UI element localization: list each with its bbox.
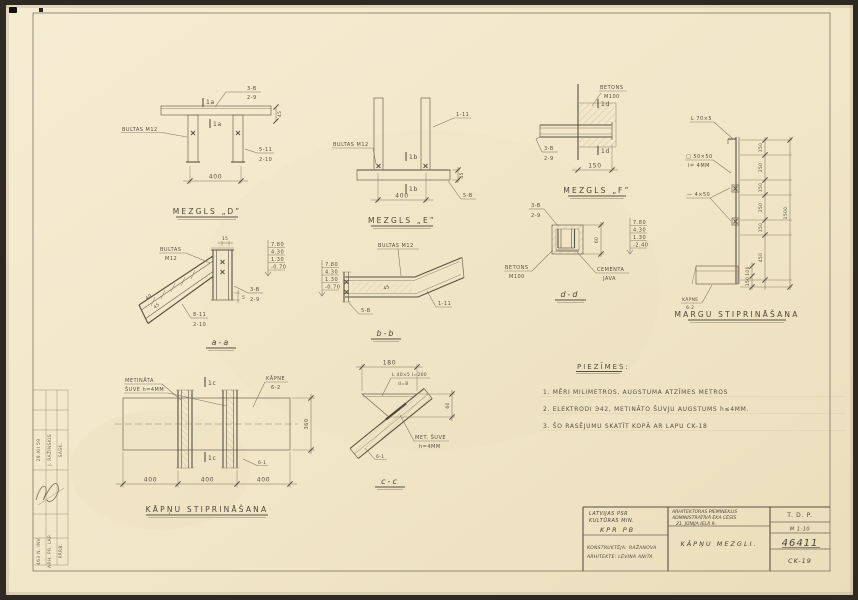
ref-label: 2-9 <box>250 297 260 303</box>
dimension: 400 <box>395 193 409 200</box>
scale: M 1:10 <box>790 527 810 533</box>
weld-label: MET. ŠUVE <box>415 434 446 441</box>
stamp-entry: 463 N. INV. <box>36 537 42 565</box>
detail-title: MARGU STIPRINĀŠANA <box>674 310 799 319</box>
mortar-label: CEMENTA <box>597 267 625 273</box>
stamp-entry: ARH. PR. LAP. <box>47 534 53 568</box>
angle-label: L 70×5 <box>691 116 712 122</box>
section-title: d-d <box>560 290 579 299</box>
dimension: 15 <box>222 236 228 242</box>
angle-label: d=8 <box>398 381 408 387</box>
dimension: 360 <box>304 418 310 429</box>
elevation: -0.70 <box>271 265 286 271</box>
ref-label: 6-1 <box>376 454 384 460</box>
dimension: 400 <box>144 477 158 484</box>
concrete-grade: M100 <box>604 94 620 100</box>
stair-ref: KĀPNE <box>682 296 698 303</box>
org-name: KULTŪRAS MIN. <box>589 517 634 524</box>
ref-label: 5-B <box>463 193 473 199</box>
dimension: 400 <box>257 477 271 484</box>
elevation: -0.70 <box>325 285 340 291</box>
ref-label: 2-9 <box>531 213 541 219</box>
bolts-label: BULTAS M12 <box>122 127 158 133</box>
dimension: 150 <box>588 163 602 170</box>
section-mark: 1d <box>601 148 610 155</box>
dimension-total: 1500 <box>783 207 789 220</box>
elevation: 7.80 <box>325 262 338 268</box>
elevation: 7.80 <box>271 242 284 248</box>
ref-label: 5-11 <box>259 147 272 153</box>
dimension: 180 <box>383 360 397 367</box>
dimension: 45 <box>459 172 465 178</box>
ref-label: 1-11 <box>456 112 469 118</box>
sheet-number: CK-19 <box>788 557 812 565</box>
stair-ref: KĀPNE <box>266 375 285 382</box>
detail-title: MEZGLS „F” <box>563 186 630 195</box>
dimension: 150 <box>758 223 764 233</box>
elevation: 4.30 <box>271 250 284 256</box>
ref-label: 6-1 <box>258 460 266 466</box>
notes-title: PIEZĪMES: <box>577 362 630 371</box>
elevation: 7.80 <box>633 220 646 226</box>
section-title: b-b <box>376 329 395 338</box>
ref-label: 5-B <box>361 308 371 314</box>
dimension: 150 <box>745 277 751 287</box>
engineering-drawing-sheet: 3-B 2-9 1a 1a BULTAS M12 5-11 2-10 400 4… <box>0 0 858 600</box>
ref-label: 2-10 <box>259 157 272 163</box>
concrete-label: BETONS <box>505 265 529 271</box>
weld-label: ŠUVE h=4MM <box>125 386 164 393</box>
dimension: 400 <box>201 477 215 484</box>
elevation: 1.30 <box>325 277 338 283</box>
project-line: ARHITEKTŪRAS PIEMINEKLIS <box>671 508 737 515</box>
stage: T. D. P. <box>786 512 812 519</box>
detail-title: KĀPŅU STIPRINĀŠANA <box>146 505 269 515</box>
dimension: 150 <box>758 183 764 193</box>
concrete-label: BETONS <box>600 85 624 91</box>
bolts-label: BULTAS M12 <box>378 243 414 249</box>
project-line: 21. JŪNIJA IELĀ 9. <box>676 520 716 527</box>
concrete-grade: M100 <box>509 274 525 280</box>
plate-label: □ 50×50 <box>686 154 713 160</box>
org-name: LATVIJAS PSR <box>589 511 628 517</box>
stamp-entry: SASK. <box>58 443 64 458</box>
plate-thickness: l= 4MM <box>688 163 710 169</box>
elevation: 1.30 <box>633 235 646 241</box>
ref-label: 2-9 <box>544 156 554 162</box>
section-mark: 1c <box>208 380 217 387</box>
drawing-title: KĀPŅU MEZGLI. <box>680 539 757 548</box>
section-title: a-a <box>212 338 231 347</box>
scan-artifact <box>39 8 43 12</box>
ref-label: 8-11 <box>193 312 206 318</box>
scan-artifact <box>9 7 17 13</box>
mortar-label: JAVA <box>602 276 616 282</box>
ref-label: 1-11 <box>438 301 451 307</box>
ref-label: 2-10 <box>193 322 206 328</box>
ref-label: 3-B <box>250 287 260 293</box>
note-item: 2. ELEKTRODI Э42, METINĀTO ŠUVJU AUGSTUM… <box>543 406 749 413</box>
section-mark: 1b <box>409 186 418 193</box>
org-abbrev: KPR PB <box>600 526 635 534</box>
stamp-entry: PĀRB. <box>57 544 64 559</box>
project-line: ADMINISTRATĪVĀ ĒKA CĒSĪS <box>671 514 736 521</box>
dimension: 250 <box>758 203 764 213</box>
section-mark: 1a <box>213 121 222 128</box>
dimension: 150 <box>758 143 764 153</box>
angle-label: L 40×5 l=200 <box>392 372 427 378</box>
dimension: 400 <box>209 174 223 181</box>
ref-label: 3-B <box>531 203 541 209</box>
dimension: 60 <box>594 237 600 243</box>
weld-label: h=4MM <box>419 444 441 450</box>
stamp-entry: 28.XII 59 <box>36 439 42 462</box>
bolts-label: BULTAS M12 <box>333 142 369 148</box>
section-title: c-c <box>381 477 399 486</box>
section-mark: 1a <box>206 99 215 106</box>
note-item: 3. ŠO RASĒJUMU SKATĪT KOPĀ AR LAPU CK-18 <box>543 423 708 430</box>
stair-ref: 6-2 <box>271 385 281 391</box>
strip-label: — 4×50 <box>687 192 710 198</box>
elevation: 1.30 <box>271 257 284 263</box>
dimension: 60 <box>445 402 451 408</box>
dimension: 45 <box>277 111 283 117</box>
sheet-canvas: 3-B 2-9 1a 1a BULTAS M12 5-11 2-10 400 4… <box>0 0 858 600</box>
section-mark: 1b <box>409 154 418 161</box>
ref-label: 2-9 <box>247 95 257 101</box>
detail-title: MEZGLS „D” <box>173 207 242 216</box>
author: ARHITEKTE: LĒVINA ANITA <box>586 553 653 560</box>
detail-title: MEZGLS „E” <box>368 216 436 225</box>
bolts-label: M12 <box>165 256 177 262</box>
dimension: 5 <box>242 295 245 301</box>
elevation: -2.40 <box>633 243 648 249</box>
section-mark: 1d <box>601 101 610 108</box>
ref-label: 3-B <box>247 86 257 92</box>
dimension: 250 <box>758 163 764 173</box>
bolts-label: BULTAS <box>160 247 181 253</box>
elevation: 4.30 <box>325 270 338 276</box>
ref-label: 3-B <box>544 146 554 152</box>
elevation: 4.30 <box>633 228 646 234</box>
dimension: 100 <box>745 266 751 276</box>
note-item: 1. MĒRI MILIMETROS, AUGSTUMA ATZĪMES MET… <box>543 389 728 396</box>
section-mark: 1c <box>208 455 217 462</box>
dimension: 450 <box>758 253 764 263</box>
weld-label: METINĀTA <box>125 377 154 384</box>
